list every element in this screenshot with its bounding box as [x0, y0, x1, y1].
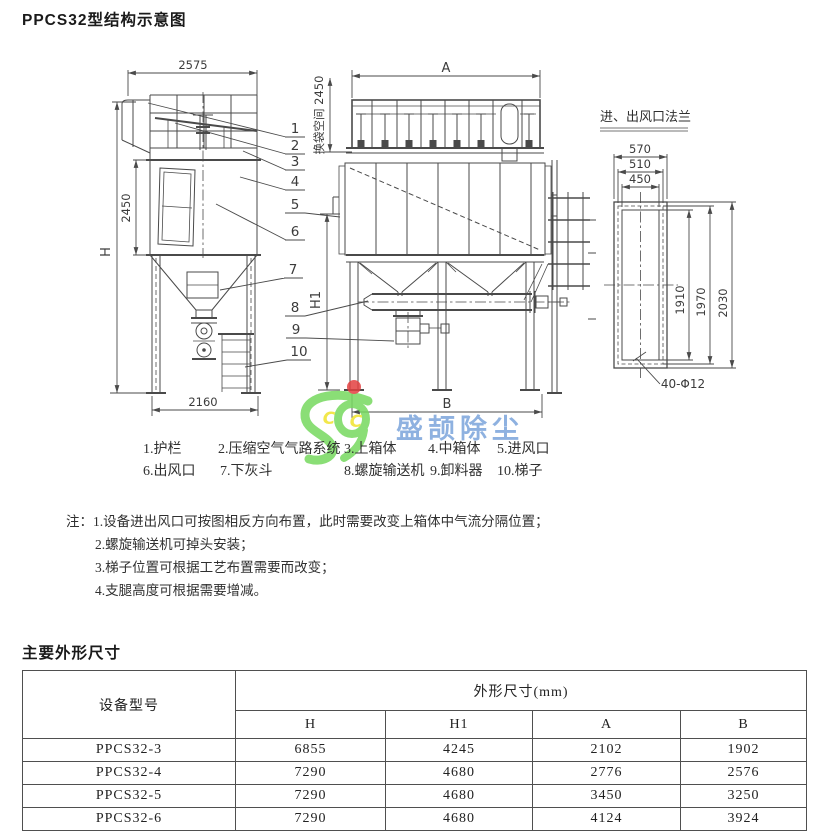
callout-9: 9	[292, 322, 301, 338]
notes-block: 注：1.设备进出风口可按图相反方向布置，此时需要改变上箱体中气流分隔位置； 2.…	[66, 510, 549, 602]
hopper-side	[150, 255, 257, 359]
table-row: PPCS32-5 7290 4680 3450 3250	[23, 785, 807, 808]
note-line-1: 注：1.设备进出风口可按图相反方向布置，此时需要改变上箱体中气流分隔位置；	[66, 510, 549, 533]
bolt-holes-callout: 40-Φ12	[633, 352, 705, 391]
cell-H: 7290	[236, 785, 386, 808]
guardrail	[122, 95, 257, 153]
cell-B: 3250	[681, 785, 807, 808]
table-row: PPCS32-3 6855 4245 2102 1902	[23, 739, 807, 762]
callout-6: 6	[291, 224, 300, 240]
flange-view: 进、出风口法兰 570 510 450 1910	[588, 109, 736, 391]
callout-3: 3	[291, 154, 300, 170]
cell-A: 2776	[533, 762, 681, 785]
dim-bag-change-space: 换袋空间 2450	[312, 76, 326, 155]
dim-side-midbox-height: 2450	[119, 193, 133, 222]
legend-item-2: 2.压缩空气气路系统	[218, 438, 341, 458]
col-header-B: B	[681, 711, 807, 739]
cell-A: 2102	[533, 739, 681, 762]
dim-flange-450: 450	[629, 172, 651, 186]
legend-item-3: 3.上箱体	[344, 438, 397, 458]
side-view-dimensions: 2575 H 2450 2160	[99, 58, 258, 416]
dim-flange-510: 510	[629, 157, 651, 171]
callout-4: 4	[291, 174, 300, 190]
note-line-4: 4.支腿高度可根据需要增减。	[95, 579, 549, 602]
dim-flange-holes: 40-Φ12	[661, 377, 705, 391]
legend-item-7: 7.下灰斗	[220, 460, 273, 480]
callouts: 1 2 3 4 5 6 7 8 9 10	[148, 103, 394, 367]
note-line-2: 2.螺旋输送机可掉头安装；	[95, 533, 549, 556]
support-frame	[344, 255, 548, 390]
cell-B: 1902	[681, 739, 807, 762]
notes-prefix: 注：	[66, 514, 93, 529]
dim-side-base-width: 2160	[188, 395, 217, 409]
callout-8: 8	[291, 300, 300, 316]
cell-B: 3924	[681, 808, 807, 831]
cell-H: 6855	[236, 739, 386, 762]
cell-H1: 4680	[386, 808, 533, 831]
col-header-group: 外形尺寸(mm)	[236, 671, 807, 711]
cell-B: 2576	[681, 762, 807, 785]
dim-flange-2030: 2030	[716, 288, 730, 317]
col-header-A: A	[533, 711, 681, 739]
legend-item-6: 6.出风口	[143, 460, 196, 480]
col-header-model: 设备型号	[23, 671, 236, 739]
legend-item-10: 10.梯子	[497, 460, 543, 480]
cell-model: PPCS32-4	[23, 762, 236, 785]
cell-model: PPCS32-5	[23, 785, 236, 808]
dimensions-table: 设备型号 外形尺寸(mm) H H1 A B PPCS32-3 6855 424…	[22, 670, 807, 831]
cell-A: 4124	[533, 808, 681, 831]
compressed-air-piping	[155, 115, 257, 150]
catalog-page: PPCS32型结构示意图	[0, 0, 828, 837]
front-view-dimensions: A 换袋空间 2450 H1 B	[309, 61, 542, 418]
callout-10: 10	[290, 344, 307, 360]
rotary-valve	[393, 310, 449, 350]
ladder	[218, 333, 254, 392]
flange-title: 进、出风口法兰	[600, 109, 691, 124]
legend-item-9: 9.卸料器	[430, 460, 483, 480]
cell-A: 3450	[533, 785, 681, 808]
dim-side-height-H: H	[99, 247, 114, 257]
structure-diagram: 2575 H 2450 2160 1 2 3 4	[0, 0, 828, 478]
legend-item-5: 5.进风口	[497, 438, 550, 458]
dim-flange-1970: 1970	[694, 287, 708, 316]
upper-box	[146, 148, 261, 160]
legs-side	[146, 255, 261, 393]
cell-H: 7290	[236, 808, 386, 831]
callout-7: 7	[289, 262, 298, 278]
cell-H1: 4680	[386, 762, 533, 785]
inlet-duct-grid	[547, 160, 590, 393]
logo-initial-2: C	[350, 412, 363, 432]
cell-H: 7290	[236, 762, 386, 785]
air-tank	[501, 104, 518, 144]
clean-air-plenum	[346, 100, 544, 161]
note-line-3: 3.梯子位置可根据工艺布置需要而改变；	[95, 556, 549, 579]
dim-flange-570: 570	[629, 142, 651, 156]
dim-flange-1910: 1910	[673, 285, 687, 314]
table-row: PPCS32-6 7290 4680 4124 3924	[23, 808, 807, 831]
col-header-H: H	[236, 711, 386, 739]
table-section-title: 主要外形尺寸	[22, 641, 121, 663]
dim-front-height-H1: H1	[309, 291, 324, 309]
table-row: PPCS32-4 7290 4680 2776 2576	[23, 762, 807, 785]
front-view: A 换袋空间 2450 H1 B	[309, 61, 590, 418]
dim-front-width-A: A	[442, 61, 451, 76]
dim-side-width: 2575	[178, 58, 207, 72]
screw-conveyor	[358, 291, 570, 313]
callout-5: 5	[291, 197, 300, 213]
cell-model: PPCS32-3	[23, 739, 236, 762]
legend-item-4: 4.中箱体	[428, 438, 481, 458]
callout-1: 1	[291, 121, 300, 137]
col-header-H1: H1	[386, 711, 533, 739]
logo-initial-1: C	[323, 409, 336, 429]
cell-H1: 4680	[386, 785, 533, 808]
cell-H1: 4245	[386, 739, 533, 762]
dim-front-base-B: B	[443, 397, 452, 412]
middle-box-front	[333, 163, 557, 255]
callout-2: 2	[291, 138, 300, 154]
cell-model: PPCS32-6	[23, 808, 236, 831]
logo-red-dot	[347, 380, 361, 394]
legend-item-1: 1.护栏	[143, 438, 182, 458]
legend-item-8: 8.螺旋输送机	[344, 460, 425, 480]
